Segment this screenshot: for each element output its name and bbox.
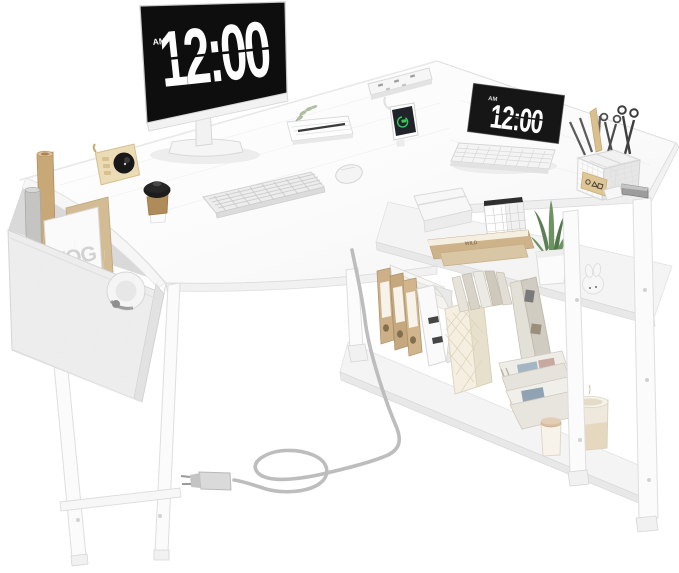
svg-text:WILD: WILD	[465, 240, 478, 247]
